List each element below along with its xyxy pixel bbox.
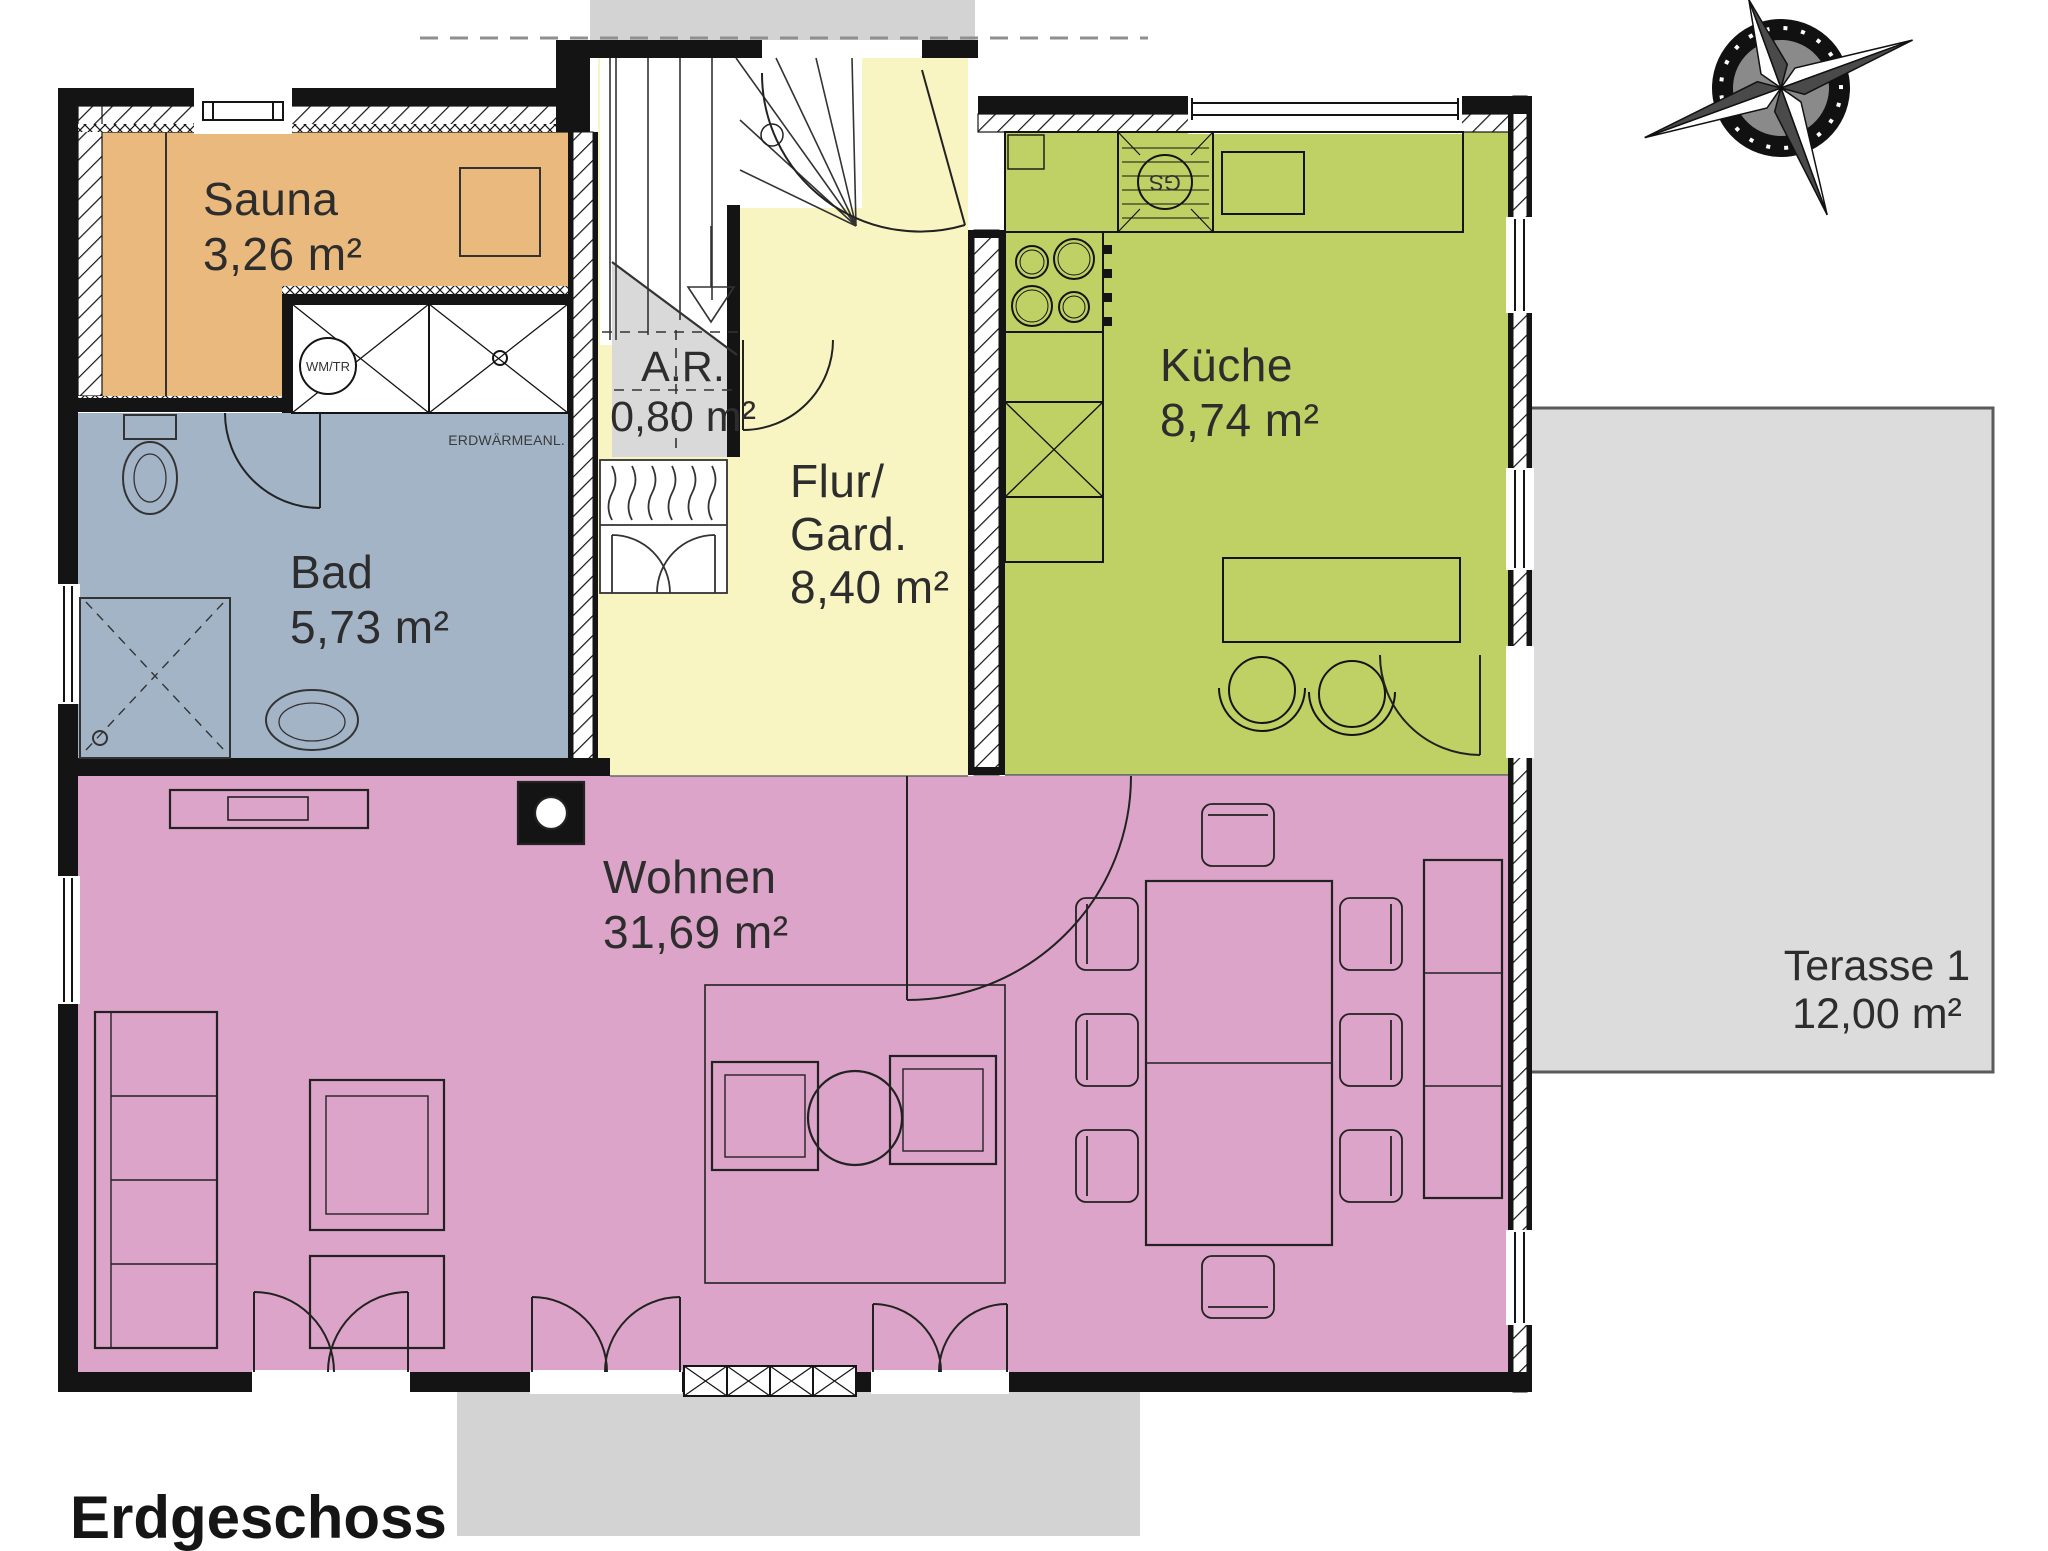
window-bad [56,584,80,704]
door-opening-terrace [1506,646,1534,758]
room-name: Gard. [790,508,949,561]
geothermal-unit-label: ERDWÄRMEANL. [425,432,565,448]
room-label-kueche: Küche 8,74 m² [1160,338,1319,448]
room-name: Flur/ [790,455,949,508]
room-area: 8,74 m² [1160,393,1319,448]
room-label-bad: Bad 5,73 m² [290,545,449,655]
floorplan-page: { "floor_title": "Erdgeschoss", "rooms":… [0,0,2048,1536]
room-area: 8,40 m² [790,561,949,614]
exterior-block-top [590,0,975,40]
room-name: Küche [1160,338,1319,393]
sauna-floor-2 [76,288,282,400]
window-kueche-right-2 [1506,468,1534,570]
room-name: Wohnen [603,850,789,905]
kueche-floor [1005,132,1508,775]
room-area: 0,80 m² [608,392,758,442]
room-area: 5,73 m² [290,600,449,655]
window-wohnen-left [56,876,80,1004]
door-opening-bottom-2 [530,1370,682,1394]
fireplace-icon [518,782,584,844]
floor-title: Erdgeschoss [70,1486,447,1550]
exterior-block-bottom [457,1392,1140,1536]
room-name: Sauna [203,172,362,227]
wardrobe-closet [600,460,727,593]
room-label-abstellraum: A.R. 0,80 m² [608,342,758,442]
room-label-wohnen: Wohnen 31,69 m² [603,850,789,960]
room-name: Terasse 1 [1697,942,2048,990]
room-area: 31,69 m² [603,905,789,960]
door-opening-entrance [762,40,922,58]
washer-dryer-label: WM/TR [298,359,358,374]
window-kueche-right-1 [1506,217,1534,313]
room-area: 12,00 m² [1697,990,2048,1038]
room-name: Bad [290,545,449,600]
window-kueche-top [1188,92,1462,134]
window-sauna [194,86,292,134]
door-opening-bottom-1 [252,1370,410,1394]
room-label-flur: Flur/ Gard. 8,40 m² [790,455,949,614]
compass-rose-icon [1613,0,1959,264]
door-opening-bottom-3 [871,1370,1009,1394]
room-area: 3,26 m² [203,227,362,282]
window-wohnen-right [1506,1230,1534,1325]
dishwasher-label: GS [1135,170,1195,194]
room-label-terrasse: Terasse 1 12,00 m² [1697,942,2048,1038]
room-label-sauna: Sauna 3,26 m² [203,172,362,282]
window-bottom-crossed [684,1366,856,1396]
room-name: A.R. [608,342,758,392]
